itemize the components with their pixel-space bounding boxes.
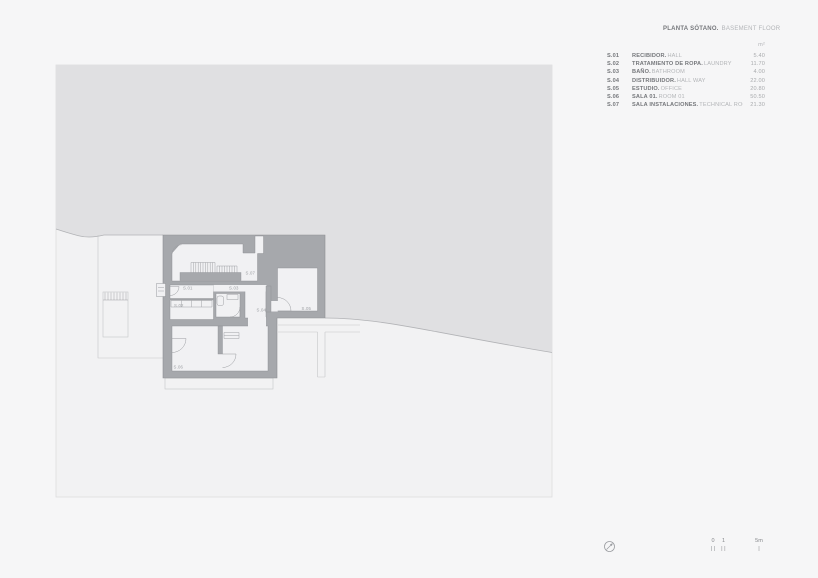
room-schedule: m² S.01 RECIBIDOR.HALL 5.40 S.02 TRATAMI… [607,41,765,109]
room-code: S.03 [607,68,632,76]
partition-s06 [218,326,223,354]
room-label-s05: S.05 [302,306,312,311]
room-code: S.05 [607,85,632,93]
legend-row: S.05 ESTUDIO.OFFICE 20.80 [607,85,765,93]
room-name-es: TRATAMIENTO DE ROPA. [632,61,703,67]
room-code: S.02 [607,60,632,68]
room-name-en: OFFICE [661,86,682,92]
room-code: S.01 [607,52,632,60]
room-code: S.06 [607,93,632,101]
wall-stub-s04 [266,286,271,312]
room-name-es: ESTUDIO. [632,86,660,92]
room-s03 [216,294,240,318]
room-code: S.07 [607,101,632,109]
room-name-en: HALL [667,53,682,59]
north-arrow-icon [605,542,615,552]
room-label-s02: S.02 [174,303,184,308]
page-title: PLANTA SÓTANO. BASEMENT FLOOR [663,26,780,32]
unit-header: m² [607,41,765,49]
room-name-es: RECIBIDOR. [632,53,666,59]
room-code: S.04 [607,77,632,85]
room-area: 21.30 [743,101,765,109]
room-name-es: DISTRIBUIDOR. [632,78,676,84]
legend-row: S.03 BAÑO.BATHROOM 4.00 [607,68,765,76]
legend-row: S.02 TRATAMIENTO DE ROPA.LAUNDRY 11.70 [607,60,765,68]
legend-row: S.06 SALA 01.ROOM 01 50.50 [607,93,765,101]
room-name-en: ROOM 01 [659,94,685,100]
room-area: 5.40 [743,52,765,60]
legend-row: S.01 RECIBIDOR.HALL 5.40 [607,52,765,60]
passage-s04-s06 [248,317,266,327]
room-name-es: SALA 01. [632,94,658,100]
stair-halfwall [180,273,241,281]
room-label-s03: S.03 [229,286,239,291]
wall-niche [157,284,166,297]
room-label-s06: S.06 [174,365,184,370]
room-name-en: HALL WAY [677,78,706,84]
scale-label-5m: 5m [755,538,763,544]
scale-bar: 0 1 5m [711,538,763,551]
room-area: 20.80 [743,85,765,93]
scale-ticks [712,546,760,551]
scale-label-1: 1 [722,538,725,544]
corridor-opening [214,285,267,292]
room-s05 [278,268,318,311]
room-area: 22.00 [743,77,765,85]
room-name-en: TECHNICAL ROOM [699,102,743,108]
sheet: S.01 S.02 S.03 S.04 S.05 S.06 S.07 0 1 5… [0,0,818,578]
room-label-s04: S.04 [257,308,267,313]
scale-label-0: 0 [711,538,714,544]
page-title-es: PLANTA SÓTANO. [663,26,719,32]
room-area: 11.70 [743,60,765,68]
room-name-es: BAÑO. [632,69,651,75]
room-label-s07: S.07 [246,271,256,276]
room-area: 4.00 [743,68,765,76]
legend-row: S.07 SALA INSTALACIONES.TECHNICAL ROOM 2… [607,101,765,109]
room-name-en: LAUNDRY [704,61,732,67]
room-area: 50.50 [743,93,765,101]
room-name-en: BATHROOM [652,69,685,75]
legend-row: S.04 DISTRIBUIDOR.HALL WAY 22.00 [607,77,765,85]
room-name-es: SALA INSTALACIONES. [632,102,698,108]
page-title-en: BASEMENT FLOOR [722,26,781,32]
room-label-s01: S.01 [183,286,193,291]
